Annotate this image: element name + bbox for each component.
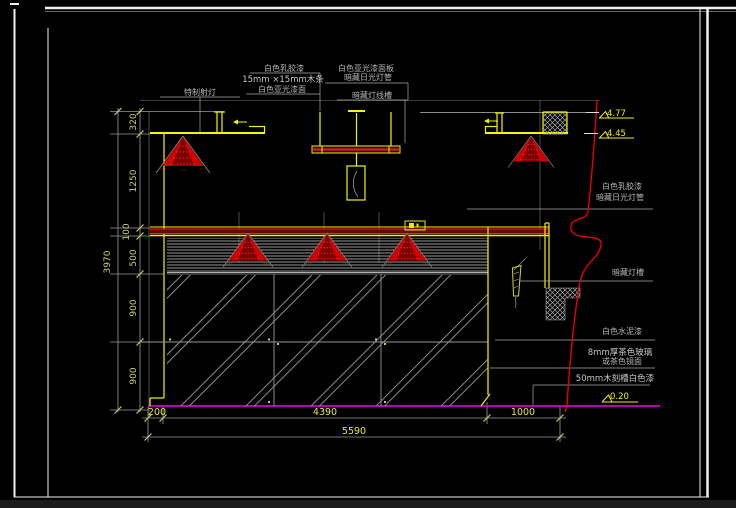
dim-900-upper: 900 — [129, 299, 139, 316]
label-right-cement-paint: 白色水泥漆 — [602, 326, 642, 336]
dim-1000: 1000 — [511, 407, 535, 418]
cad-drawing-canvas[interactable]: 3970 320 1250 100 500 900 900 200 4390 1… — [0, 0, 736, 508]
label-hidden-light-trough: 暗藏灯线槽 — [352, 90, 392, 100]
glass-panels — [140, 274, 488, 406]
dim-900-lower: 900 — [129, 367, 139, 384]
blocking-hatch — [543, 112, 567, 134]
elevation-upper: 4.77 — [607, 109, 626, 119]
label-spotlight: 特制射灯 — [184, 87, 216, 97]
label-hidden-fluorescent: 暗藏日光灯管 — [344, 72, 392, 82]
elevation-drawing: 3970 320 1250 100 500 900 900 200 4390 1… — [0, 0, 736, 508]
ceiling-fixture-left — [150, 112, 265, 173]
spotlight-symbol — [508, 136, 554, 167]
label-right-wood-trim: 50mm木刻槽白色漆 — [576, 373, 655, 384]
annotations-top: 特制射灯 白色乳胶漆 15mm ×15mm木条 白色亚光漆面 白色亚光漆面板 暗… — [184, 63, 394, 100]
right-side-detail — [513, 223, 581, 320]
pendant-light-assembly — [312, 111, 400, 200]
label-matte-panel: 白色亚光漆面板 — [338, 63, 394, 73]
pendant-cylinder — [347, 166, 365, 200]
dim-200: 200 — [148, 407, 166, 418]
label-right-fluorescent: 暗藏日光灯管 — [596, 192, 644, 202]
bottom-dimension-chain: 200 4390 1000 5590 — [142, 402, 566, 442]
label-wood-strip: 15mm ×15mm木条 — [242, 74, 324, 85]
wall-washer-symbol — [513, 266, 522, 297]
dim-left-total: 3970 — [103, 250, 113, 273]
label-right-light-trough: 暗藏灯槽 — [612, 267, 644, 277]
elevation-lower: 4.45 — [607, 129, 626, 139]
left-wall — [150, 134, 164, 406]
louver-panel — [167, 233, 488, 273]
detail-arrow-icon — [233, 120, 238, 125]
label-white-latex-paint: 白色乳胶漆 — [264, 63, 304, 73]
elevation-floor: 0.20 — [610, 392, 629, 402]
label-matte-paint: 白色亚光漆面 — [258, 84, 306, 94]
ceiling-fixture-right — [484, 112, 568, 167]
break-line — [565, 100, 601, 412]
detail-arrow-icon — [484, 119, 489, 124]
dim-1250: 1250 — [129, 169, 139, 192]
label-right-latex-paint: 白色乳胶漆 — [602, 181, 642, 191]
dim-100: 100 — [122, 223, 132, 240]
dim-4390: 4390 — [313, 407, 337, 418]
dim-500: 500 — [129, 249, 139, 266]
label-right-mirror: 或茶色镜面 — [602, 356, 642, 366]
dim-320: 320 — [129, 113, 139, 130]
cove-light-band — [150, 221, 549, 236]
bottom-strip — [0, 500, 736, 508]
dim-bottom-total: 5590 — [342, 426, 366, 437]
